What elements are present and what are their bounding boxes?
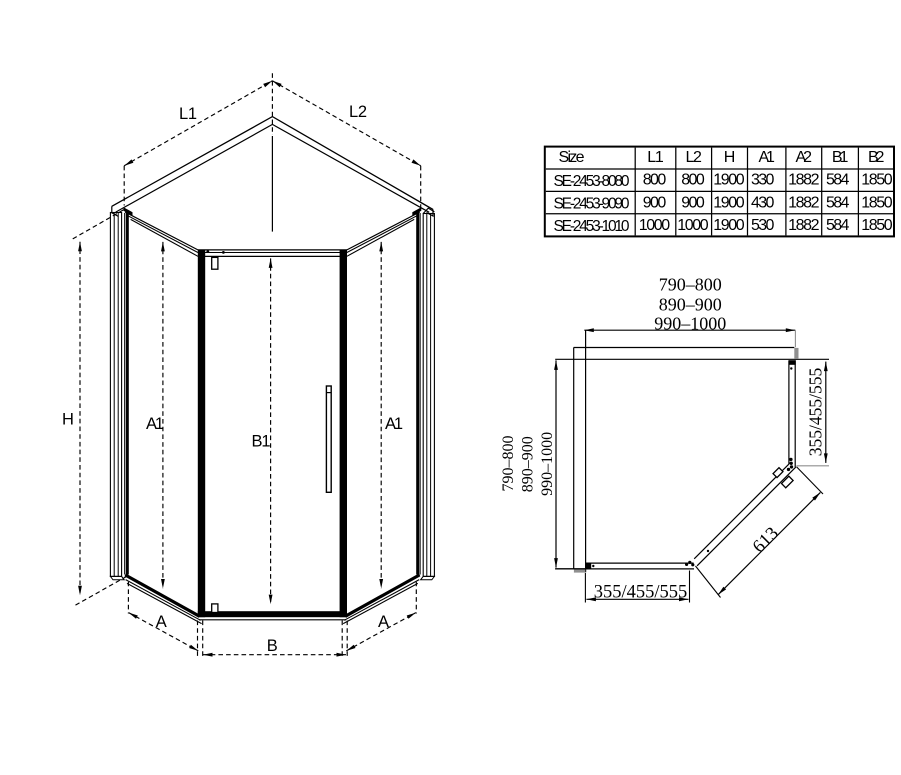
svg-text:A1: A1 <box>385 415 403 433</box>
svg-text:355/455/555: 355/455/555 <box>806 368 826 457</box>
svg-text:800: 800 <box>643 172 667 189</box>
svg-text:790–800: 790–800 <box>659 275 722 295</box>
svg-text:1000: 1000 <box>639 217 670 234</box>
svg-text:SE-2453-9090: SE-2453-9090 <box>554 196 630 213</box>
svg-text:1882: 1882 <box>788 172 819 189</box>
svg-text:890–900: 890–900 <box>519 436 536 492</box>
svg-text:890–900: 890–900 <box>659 295 722 315</box>
svg-text:900: 900 <box>681 194 705 211</box>
svg-text:A: A <box>156 613 167 631</box>
svg-text:990–1000: 990–1000 <box>539 432 556 496</box>
svg-text:1900: 1900 <box>713 194 744 211</box>
svg-text:430: 430 <box>751 194 775 211</box>
svg-text:1000: 1000 <box>677 217 708 234</box>
svg-text:1900: 1900 <box>713 217 744 234</box>
svg-text:B1: B1 <box>832 149 849 166</box>
svg-text:1850: 1850 <box>861 194 892 211</box>
svg-text:B1: B1 <box>252 433 271 451</box>
svg-text:800: 800 <box>681 172 705 189</box>
svg-text:584: 584 <box>826 217 850 234</box>
svg-text:SE-2453-1010: SE-2453-1010 <box>554 218 630 235</box>
svg-text:530: 530 <box>751 217 775 234</box>
svg-text:SE-2453-8080: SE-2453-8080 <box>554 173 630 190</box>
svg-text:A: A <box>378 613 389 631</box>
svg-text:A1: A1 <box>758 149 775 166</box>
svg-text:H: H <box>62 411 74 429</box>
svg-text:A2: A2 <box>796 149 813 166</box>
svg-text:L2: L2 <box>349 103 367 121</box>
svg-text:355/455/555: 355/455/555 <box>594 583 688 603</box>
svg-text:330: 330 <box>751 172 775 189</box>
svg-text:L2: L2 <box>685 149 702 166</box>
svg-text:790–800: 790–800 <box>500 436 517 492</box>
svg-text:1850: 1850 <box>861 172 892 189</box>
svg-text:990–1000: 990–1000 <box>654 313 726 333</box>
svg-text:Size: Size <box>559 149 585 166</box>
svg-text:1900: 1900 <box>713 172 744 189</box>
svg-text:L1: L1 <box>179 105 197 123</box>
svg-text:B2: B2 <box>868 149 885 166</box>
svg-text:1850: 1850 <box>861 217 892 234</box>
svg-text:584: 584 <box>826 172 850 189</box>
svg-text:A1: A1 <box>146 415 164 433</box>
svg-text:1882: 1882 <box>788 217 819 234</box>
svg-text:H: H <box>724 149 736 166</box>
svg-text:584: 584 <box>826 194 850 211</box>
svg-text:B: B <box>267 637 278 655</box>
svg-text:L1: L1 <box>647 149 664 166</box>
svg-text:900: 900 <box>643 194 667 211</box>
svg-text:1882: 1882 <box>788 194 819 211</box>
